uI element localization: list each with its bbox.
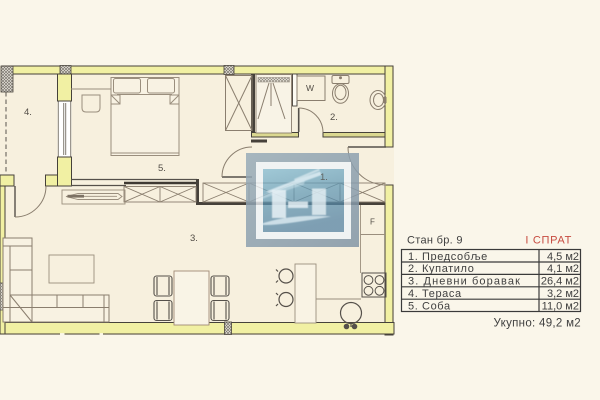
svg-text:2. Купатило: 2. Купатило (408, 263, 474, 275)
svg-text:5. Соба: 5. Соба (408, 301, 451, 313)
svg-text:W: W (306, 83, 314, 93)
svg-text:5.: 5. (158, 163, 166, 174)
svg-text:3,2 м2: 3,2 м2 (547, 288, 579, 300)
svg-text:4.: 4. (24, 107, 32, 118)
svg-text:11,0 м2: 11,0 м2 (542, 301, 579, 313)
svg-text:26,4 м2: 26,4 м2 (541, 276, 579, 288)
svg-text:2.: 2. (330, 112, 338, 123)
svg-text:4. Тераса: 4. Тераса (408, 288, 462, 300)
svg-text:3. Дневни боравак: 3. Дневни боравак (408, 276, 521, 288)
svg-text:3.: 3. (190, 233, 198, 244)
svg-text:1. Предсобље: 1. Предсобље (408, 251, 488, 263)
svg-text:Стан бр. 9: Стан бр. 9 (407, 235, 463, 247)
svg-text:I СПРАТ: I СПРАТ (525, 235, 572, 247)
svg-text:F: F (370, 218, 375, 227)
svg-text:4,1 м2: 4,1 м2 (547, 263, 579, 275)
svg-text:1.: 1. (320, 172, 328, 183)
svg-text:Укупно: 49,2 м2: Укупно: 49,2 м2 (494, 318, 581, 330)
svg-text:4,5 м2: 4,5 м2 (547, 251, 579, 263)
